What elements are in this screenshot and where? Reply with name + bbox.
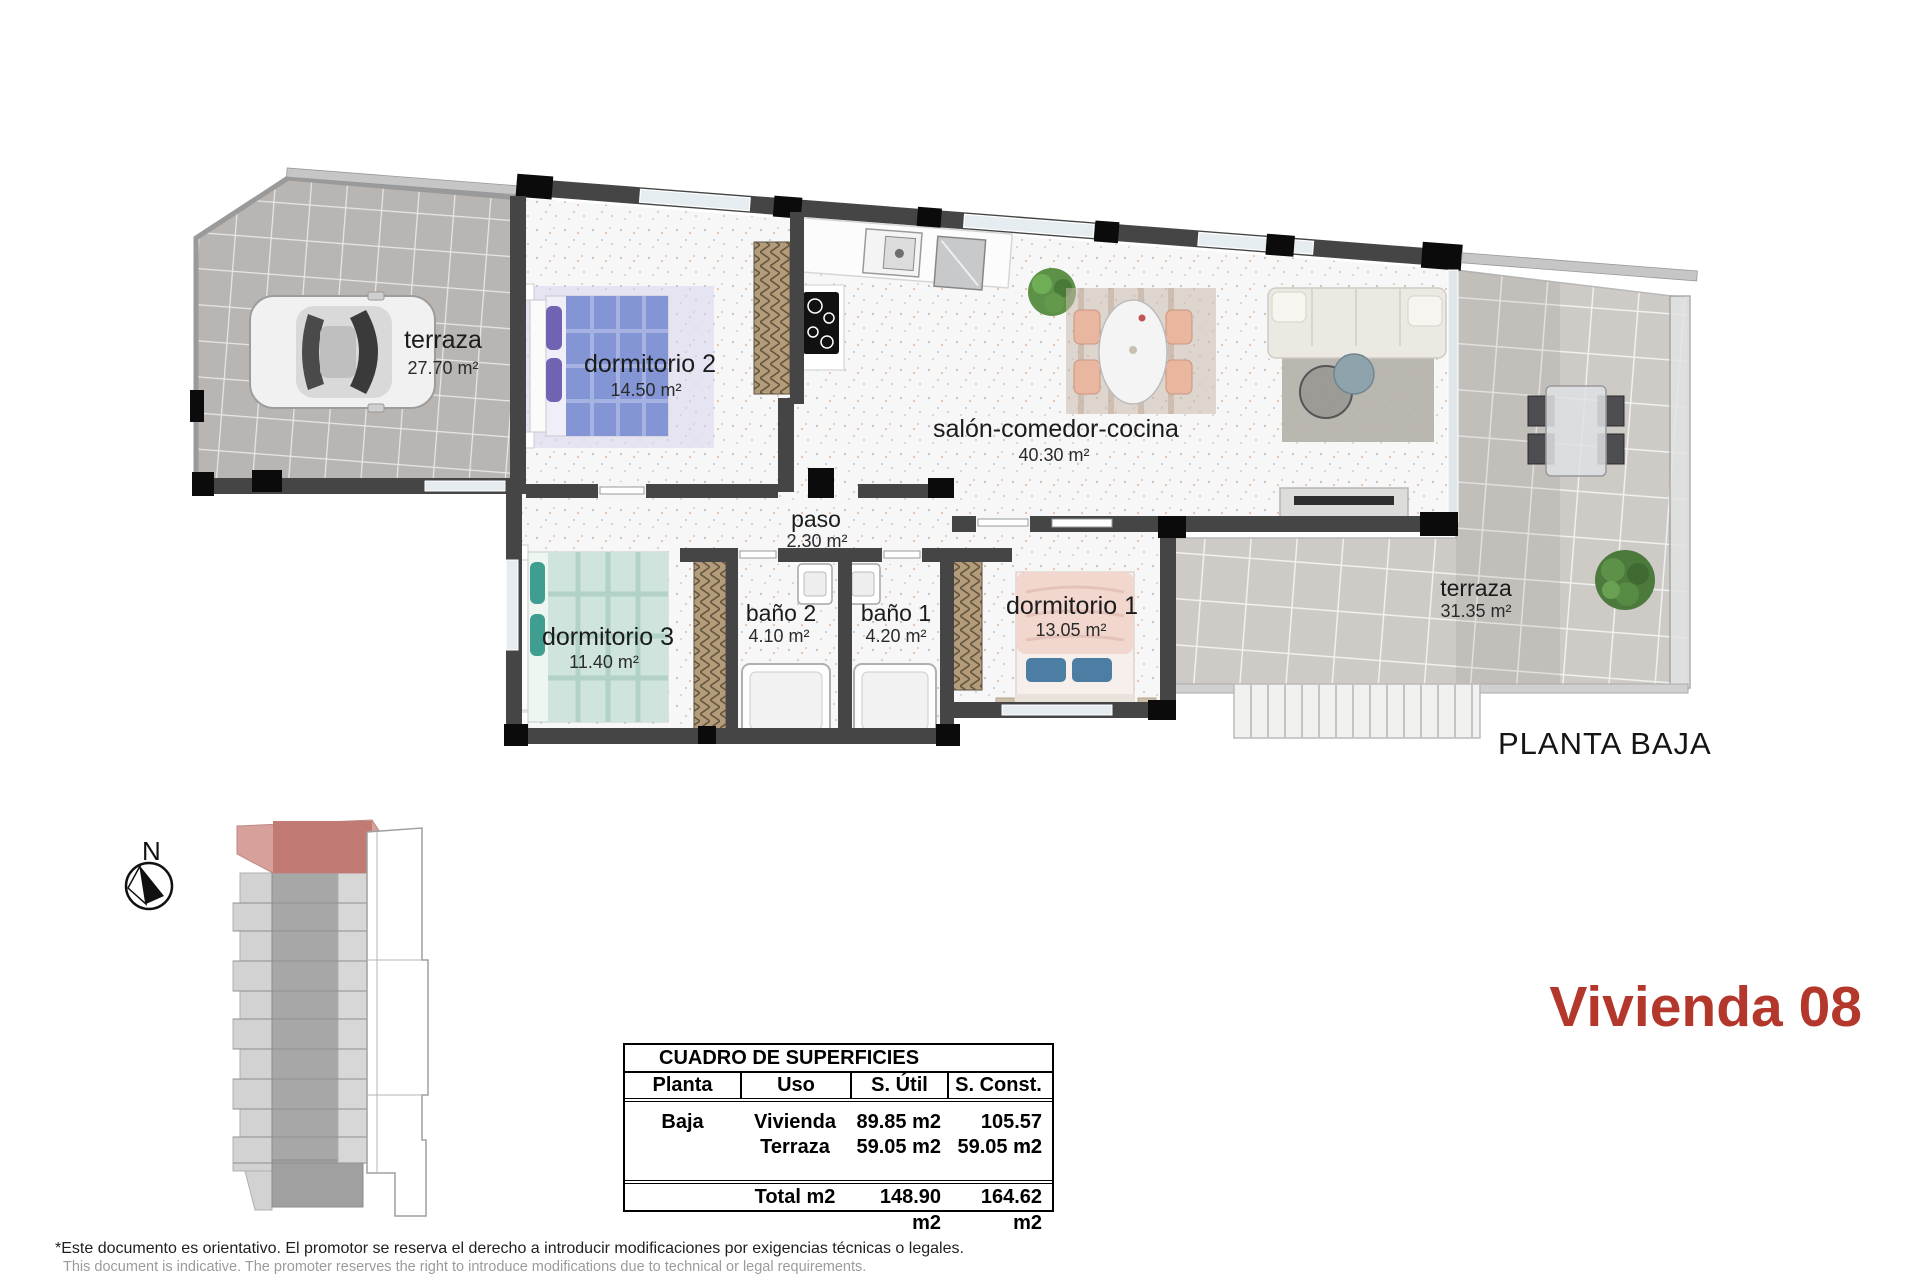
sofa	[1268, 288, 1446, 442]
floorplan-page: terraza 27.70 m² dormitorio 2 14.50 m² s…	[0, 0, 1920, 1280]
area-bano-2: 4.10 m²	[748, 626, 809, 646]
label-terraza-garaje: terraza	[404, 326, 482, 354]
label-bano-2: baño 2	[746, 600, 816, 626]
wardrobe-dorm1	[952, 556, 982, 690]
label-terraza: terraza	[1440, 575, 1512, 601]
col-uso: Uso	[740, 1073, 850, 1098]
area-terraza: 31.35 m²	[1440, 601, 1511, 621]
surfaces-table-body: Baja Vivienda 89.85 m2 105.57 m2 Terraza…	[625, 1102, 1052, 1180]
area-dormitorio-3: 11.40 m²	[569, 652, 639, 672]
label-bano-1: baño 1	[861, 600, 931, 626]
col-planta: Planta	[625, 1073, 740, 1098]
col-const: S. Const.	[947, 1073, 1048, 1098]
area-paso: 2.30 m²	[786, 531, 847, 551]
disclaimer-es: *Este documento es orientativo. El promo…	[55, 1240, 964, 1258]
surfaces-table-total-row: Total m2 148.90 m2 164.62 m2	[625, 1180, 1052, 1210]
cell-uso: Terraza	[740, 1135, 850, 1160]
surfaces-table: CUADRO DE SUPERFICIES Planta Uso S. Útil…	[623, 1043, 1054, 1212]
area-salon: 40.30 m²	[1018, 445, 1089, 465]
floorplan-drawing: terraza 27.70 m² dormitorio 2 14.50 m² s…	[0, 0, 1920, 800]
table-row: Terraza 59.05 m2 59.05 m2	[625, 1135, 1052, 1160]
compass-north-label: N	[142, 836, 161, 866]
surfaces-table-header: Planta Uso S. Útil S. Const.	[625, 1073, 1052, 1102]
table-row: Baja Vivienda 89.85 m2 105.57 m2	[625, 1110, 1052, 1135]
label-salon: salón-comedor-cocina	[933, 415, 1179, 443]
wardrobe-dorm2	[754, 242, 790, 394]
area-dormitorio-2: 14.50 m²	[610, 380, 681, 400]
surfaces-table-title: CUADRO DE SUPERFICIES	[625, 1045, 1052, 1073]
label-paso: paso	[791, 506, 841, 532]
site-building	[233, 820, 428, 1216]
site-plan: N	[80, 810, 460, 1230]
label-dormitorio-2: dormitorio 2	[584, 350, 716, 378]
cell-empty	[625, 1184, 740, 1236]
cell-util: 59.05 m2	[850, 1135, 947, 1160]
total-label: Total m2	[740, 1184, 850, 1236]
dining-table	[1066, 288, 1216, 414]
area-bano-1: 4.20 m²	[865, 626, 926, 646]
label-dormitorio-3: dormitorio 3	[542, 623, 674, 651]
area-terraza-garaje: 27.70 m²	[407, 358, 478, 378]
floor-label: PLANTA BAJA	[1498, 726, 1712, 762]
total-const: 164.62 m2	[947, 1184, 1048, 1236]
cell-planta	[625, 1135, 740, 1160]
cell-const: 59.05 m2	[947, 1135, 1048, 1160]
disclaimer-en: This document is indicative. The promote…	[63, 1259, 866, 1275]
col-util: S. Útil	[850, 1073, 947, 1098]
wardrobe-dorm3	[694, 556, 726, 736]
terrace-plant-icon	[1595, 550, 1655, 610]
stairs	[1234, 684, 1480, 738]
total-util: 148.90 m2	[850, 1184, 947, 1236]
label-dormitorio-1: dormitorio 1	[1006, 592, 1138, 620]
area-dormitorio-1: 13.05 m²	[1035, 620, 1106, 640]
kitchen-hob	[798, 285, 844, 370]
compass-icon: N	[126, 836, 172, 909]
unit-title: Vivienda 08	[1422, 974, 1862, 1040]
